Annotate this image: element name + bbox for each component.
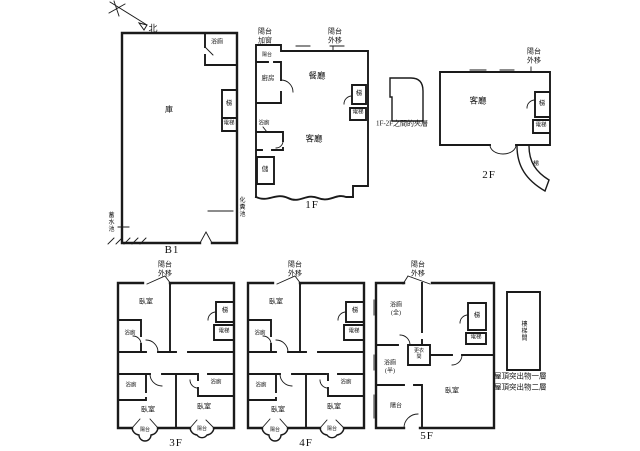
room-label-1f-living: 客廳 [305,134,322,145]
f3-plan [118,276,234,441]
room-label-3f-balcony-left: 陽台 [140,428,150,434]
f2-walls [440,72,550,145]
annotation-balcony-out-2f: 陽台 外移 [527,47,541,65]
room-label-1f-stair: 梯 [356,90,363,98]
f4-plan [248,276,364,441]
room-label-5f-elevator: 電梯 [470,335,481,342]
north-label: 北 [148,23,157,34]
room-label-4f-bedroom-right: 臥室 [327,403,341,412]
room-label-roof-stairwell: 樓梯間 [520,321,526,342]
b1-details [108,47,233,244]
annotation-balcony-window-1f: 陽台 加窗 [258,27,272,45]
north-compass [109,1,147,30]
annotation-roof-note-1: 屋頂突出物一層 [494,371,547,382]
room-label-b1-main: 庫 [165,105,173,115]
f2-details [470,67,535,154]
compass-needle [109,1,147,25]
room-label-b1-bath: 浴廁 [211,39,223,47]
room-label-4f-bath-right: 浴廁 [340,380,351,387]
floor-label-2f: 2F [482,169,496,183]
annotation-balcony-out-1f: 陽台 外移 [328,27,342,45]
room-label-3f-elevator: 電梯 [218,329,229,336]
room-label-3f-balcony-right: 陽台 [197,427,207,433]
room-label-4f-balcony-left: 陽台 [270,428,280,434]
room-label-4f-stair: 梯 [352,307,359,315]
room-label-2f-curved-stair: 梯 [533,161,539,169]
room-label-4f-bedroom-left: 臥室 [271,406,285,415]
floor-plan-sheet: 北 庫 浴廁 梯 電梯 蓄水池 化糞池 B1 陽台 加窗 陽台 外移 陽台 廚房… [0,0,640,451]
b1-plan [108,33,237,244]
room-label-2f-elevator: 電梯 [535,123,546,130]
room-label-5f-bath-full: 浴廁 (全) [390,303,402,318]
annotation-balcony-out-4f: 陽台 外移 [288,260,302,278]
room-label-5f-balcony: 陽台 [390,403,402,411]
room-label-3f-bath-right: 浴廁 [210,380,221,387]
floor-label-3f: 3F [169,437,183,451]
room-label-4f-bath-top: 浴廁 [254,331,265,338]
room-label-5f-bedroom: 臥室 [445,387,459,396]
room-label-5f-stair: 梯 [474,312,481,320]
room-label-2f-living: 客廳 [469,96,486,107]
b1-inner-walls [205,33,237,131]
room-label-4f-elevator: 電梯 [348,329,359,336]
room-label-3f-bedroom-left: 臥室 [141,406,155,415]
room-label-3f-stair: 梯 [222,307,229,315]
room-label-4f-bedroom-top: 臥室 [269,298,283,307]
room-label-2f-stair: 梯 [539,100,546,108]
room-label-4f-balcony-right: 陽台 [327,427,337,433]
f3-inner-walls [118,283,234,428]
room-label-1f-balcony: 陽台 [262,53,272,59]
annotation-septic-tank: 化糞池 [238,197,244,218]
f1-plan [256,45,368,200]
floor-label-b1: B1 [165,244,180,258]
f1-walls [256,45,368,197]
floor-label-1f: 1F [305,199,319,213]
room-label-5f-dressing: 更衣 間 [414,349,424,362]
room-label-1f-kitchen: 廚房 [262,75,275,83]
room-label-b1-elevator: 電梯 [223,121,234,128]
room-label-3f-bedroom-right: 臥室 [197,403,211,412]
room-label-1f-dining: 餐廳 [308,71,325,82]
floor-label-4f: 4F [299,437,313,451]
room-label-1f-elevator: 電梯 [352,110,363,117]
room-label-4f-bath-left: 浴廁 [255,383,266,390]
annotation-mezzanine: 1F-2F之間的夾層 [376,120,428,129]
floor-label-5f: 5F [420,430,434,444]
room-label-b1-stair: 梯 [226,100,233,108]
annotation-roof-note-2: 屋頂突出物二層 [494,382,547,393]
room-label-1f-bath: 浴廁 [258,121,269,128]
room-label-1f-storage: 儲 [262,166,269,174]
annotation-balcony-out-3f: 陽台 外移 [158,260,172,278]
room-label-3f-bath-left: 浴廁 [125,383,136,390]
annotation-balcony-out-5f: 陽台 外移 [411,260,425,278]
room-label-5f-bath-half: 浴廁 (半) [384,361,396,376]
room-label-3f-bedroom-top: 臥室 [139,298,153,307]
room-label-3f-bath-top: 浴廁 [124,331,135,338]
annotation-water-tank: 蓄水池 [107,212,113,233]
mezzanine-outline [390,78,423,121]
